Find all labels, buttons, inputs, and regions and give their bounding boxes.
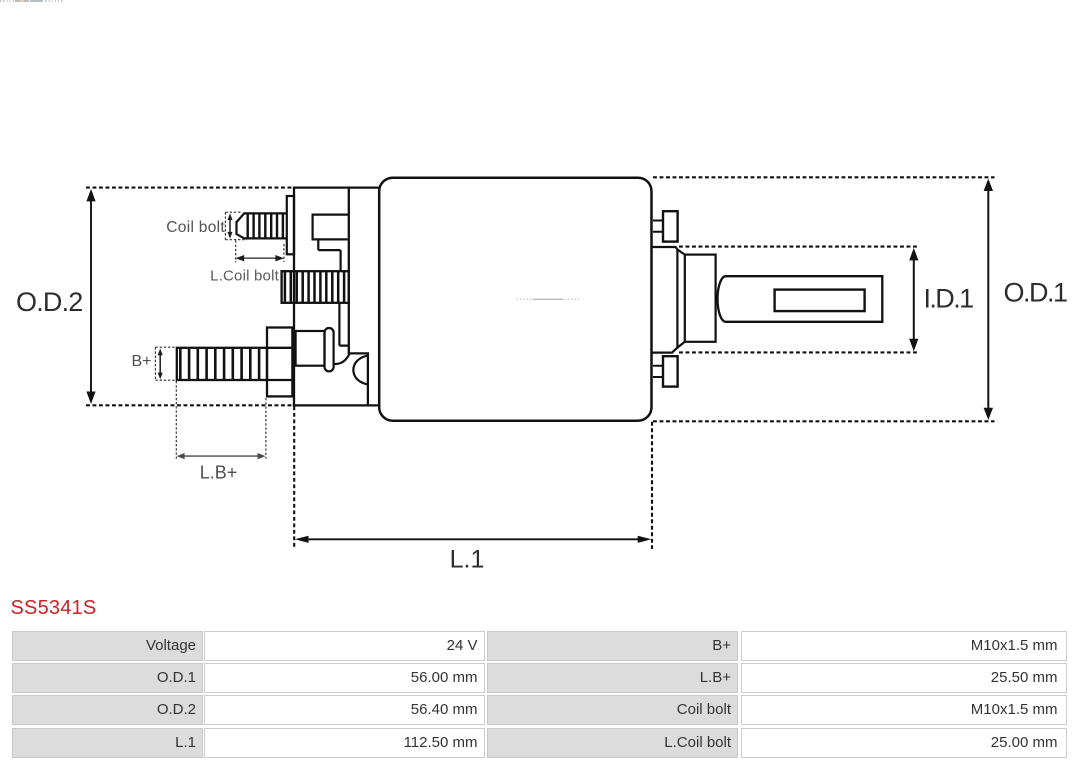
svg-text:B+: B+ (131, 353, 151, 370)
svg-text:Coil bolt: Coil bolt (166, 219, 225, 236)
svg-text:L.Coil bolt: L.Coil bolt (210, 268, 280, 285)
svg-text:O.D.2: O.D.2 (16, 287, 83, 317)
svg-text:O.D.1: O.D.1 (1004, 278, 1068, 308)
svg-text:L.1: L.1 (450, 546, 485, 574)
svg-text:L.B+: L.B+ (200, 463, 238, 483)
svg-text:I.D.1: I.D.1 (924, 284, 974, 314)
